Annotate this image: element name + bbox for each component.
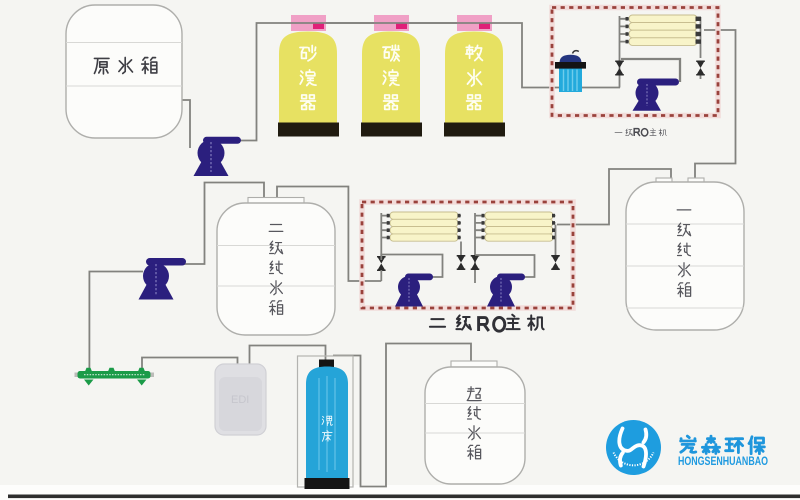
svg-text:EDI: EDI <box>231 394 249 406</box>
svg-text:HONGSENHUANBAO: HONGSENHUANBAO <box>678 454 768 468</box>
